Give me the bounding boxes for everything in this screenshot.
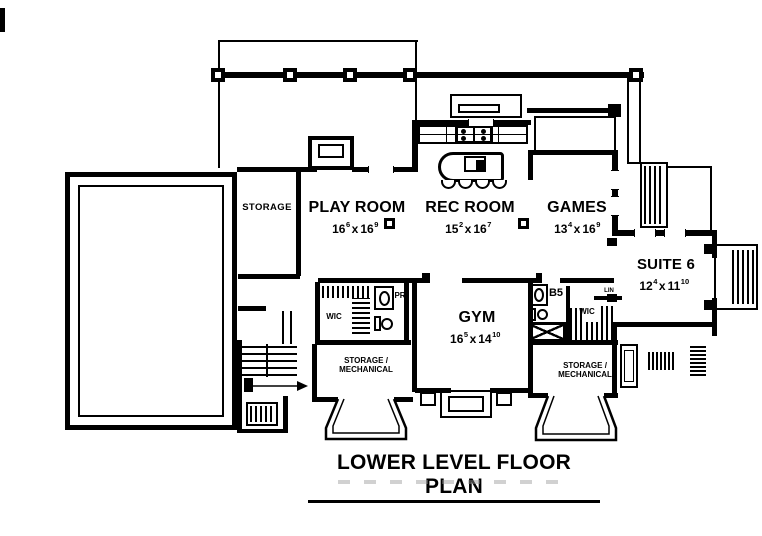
stair-mark xyxy=(244,378,253,392)
wall xyxy=(313,397,338,402)
sep: x xyxy=(352,222,359,236)
column xyxy=(384,218,395,229)
sup: 10 xyxy=(681,277,689,286)
span: 16 xyxy=(360,222,373,236)
wall xyxy=(448,396,484,412)
deck-edge xyxy=(218,40,418,42)
span: 15 xyxy=(445,222,458,236)
hatchv xyxy=(644,166,664,224)
steps-hatch xyxy=(648,352,674,370)
hatchv xyxy=(732,250,754,304)
div: MECHANICAL xyxy=(339,365,393,374)
wall xyxy=(530,150,618,155)
wall xyxy=(296,172,301,276)
oval xyxy=(379,291,390,306)
wall xyxy=(476,160,484,171)
wall xyxy=(290,311,292,344)
wall xyxy=(394,397,413,402)
wall xyxy=(283,396,288,433)
shower-icon xyxy=(528,322,566,342)
wall xyxy=(528,150,533,180)
wall xyxy=(712,230,717,258)
wall xyxy=(238,306,266,311)
room-label-storage: STORAGE xyxy=(242,202,292,213)
wall xyxy=(266,344,268,377)
wall xyxy=(560,278,614,283)
hatchv xyxy=(250,406,274,422)
closet-shelving xyxy=(586,322,599,342)
oval xyxy=(537,309,548,320)
sup: 7 xyxy=(487,220,491,229)
room-label-storage-mech-left: STORAGE / MECHANICAL xyxy=(339,356,393,374)
room-label-games: GAMES xyxy=(547,199,607,217)
wall xyxy=(238,274,300,279)
room-label-wic-left: WIC xyxy=(326,312,342,321)
sup: 4 xyxy=(653,277,657,286)
room-dims-play-room: 166x169 xyxy=(332,221,378,236)
floor-plan-canvas: STORAGE PLAY ROOM 166x169 REC ROOM 152x1… xyxy=(0,0,762,536)
wall xyxy=(282,311,284,344)
oval xyxy=(461,129,466,134)
wall xyxy=(218,40,220,168)
wall xyxy=(237,429,288,433)
path xyxy=(326,399,406,439)
room-label-gym: GYM xyxy=(458,309,495,327)
sup: 9 xyxy=(374,220,378,229)
window xyxy=(611,196,619,216)
wall xyxy=(458,104,500,113)
sep: x xyxy=(574,222,581,236)
deck-post xyxy=(343,68,357,82)
polygon xyxy=(297,381,308,391)
wall xyxy=(312,344,317,402)
wall xyxy=(315,282,320,344)
window xyxy=(664,229,686,237)
div: STORAGE / xyxy=(558,361,612,370)
span: 16 xyxy=(582,222,595,236)
wall xyxy=(420,392,436,406)
closet-shelving xyxy=(352,298,370,334)
wall xyxy=(412,282,417,392)
window xyxy=(368,166,394,173)
div: STORAGE / xyxy=(339,356,393,365)
closet-shelving xyxy=(322,286,372,298)
room-label-rec-room: REC ROOM xyxy=(425,199,515,217)
wall xyxy=(78,185,224,417)
wall xyxy=(710,166,712,232)
wall xyxy=(498,125,499,144)
wall xyxy=(712,298,717,336)
column xyxy=(518,218,529,229)
room-label-storage-mech-right: STORAGE / MECHANICAL xyxy=(558,361,612,379)
wall xyxy=(237,396,242,433)
stool-icon xyxy=(475,180,490,189)
wall xyxy=(624,350,634,382)
room-dims-gym: 165x1410 xyxy=(450,331,500,346)
oval xyxy=(534,288,544,302)
window xyxy=(634,229,656,237)
room-label-wic-right: WIC xyxy=(579,307,595,316)
deck-post xyxy=(403,68,417,82)
sup: 9 xyxy=(596,220,600,229)
wall xyxy=(237,340,242,400)
span: 16 xyxy=(332,222,345,236)
stair-landing xyxy=(534,116,616,152)
stool-icon xyxy=(458,180,473,189)
wall xyxy=(315,340,411,345)
span: 14 xyxy=(478,332,491,346)
room-dims-rec-room: 152x167 xyxy=(445,221,491,236)
sup: 10 xyxy=(492,330,500,339)
span: 16 xyxy=(473,222,486,236)
stair-tread xyxy=(240,374,297,376)
oval xyxy=(381,318,393,330)
div: MECHANICAL xyxy=(558,370,612,379)
room-label-pr: PR xyxy=(394,291,405,300)
sup: 5 xyxy=(464,330,468,339)
wall xyxy=(612,150,618,234)
wall xyxy=(627,78,641,164)
page-title: LOWER LEVEL FLOOR PLAN xyxy=(308,451,600,503)
door-jamb xyxy=(422,273,430,283)
sup: 2 xyxy=(459,220,463,229)
wall xyxy=(237,167,317,172)
wall xyxy=(473,125,475,144)
wall xyxy=(604,393,618,398)
wall xyxy=(446,125,447,144)
toilet-icon xyxy=(530,308,536,321)
oval xyxy=(481,136,486,141)
path xyxy=(536,396,616,440)
sup: 6 xyxy=(346,220,350,229)
window xyxy=(611,170,619,190)
wall xyxy=(318,144,344,158)
toilet-icon xyxy=(374,316,381,331)
room-label-b5: B5 xyxy=(549,287,563,299)
deck-post xyxy=(283,68,297,82)
span: 11 xyxy=(668,279,681,293)
path xyxy=(543,396,609,434)
stair-tread xyxy=(240,346,297,348)
sep: x xyxy=(659,279,666,293)
deck-rail xyxy=(218,72,644,78)
cropped-text-remnant xyxy=(338,480,566,484)
room-label-play-room: PLAY ROOM xyxy=(309,199,406,217)
wall xyxy=(530,393,548,398)
window xyxy=(468,119,494,126)
stair-tread xyxy=(240,353,297,355)
span: 13 xyxy=(554,222,567,236)
wall xyxy=(0,8,5,32)
wall xyxy=(527,108,619,113)
span: 16 xyxy=(450,332,463,346)
room-dims-suite-6: 124x1110 xyxy=(639,278,688,293)
wall xyxy=(612,322,717,327)
sep: x xyxy=(470,332,477,346)
path xyxy=(333,399,399,433)
span: 12 xyxy=(639,279,652,293)
steps-hatch xyxy=(690,344,706,376)
stool-icon xyxy=(492,180,507,189)
oval xyxy=(461,136,466,141)
stair-tread xyxy=(240,367,297,369)
stool-icon xyxy=(441,180,456,189)
room-label-lin: LIN xyxy=(604,288,614,294)
sep: x xyxy=(465,222,472,236)
deck-post xyxy=(211,68,225,82)
stair-tread xyxy=(240,360,297,362)
closet-shelving xyxy=(601,306,614,342)
door-jamb xyxy=(536,273,542,283)
door-jamb xyxy=(607,238,617,246)
sup: 4 xyxy=(568,220,572,229)
oval xyxy=(481,129,486,134)
wall xyxy=(594,296,622,300)
wall xyxy=(668,166,712,168)
room-dims-games: 134x169 xyxy=(554,221,600,236)
wall xyxy=(462,278,536,283)
room-label-suite-6: SUITE 6 xyxy=(637,256,695,273)
wall xyxy=(496,392,512,406)
